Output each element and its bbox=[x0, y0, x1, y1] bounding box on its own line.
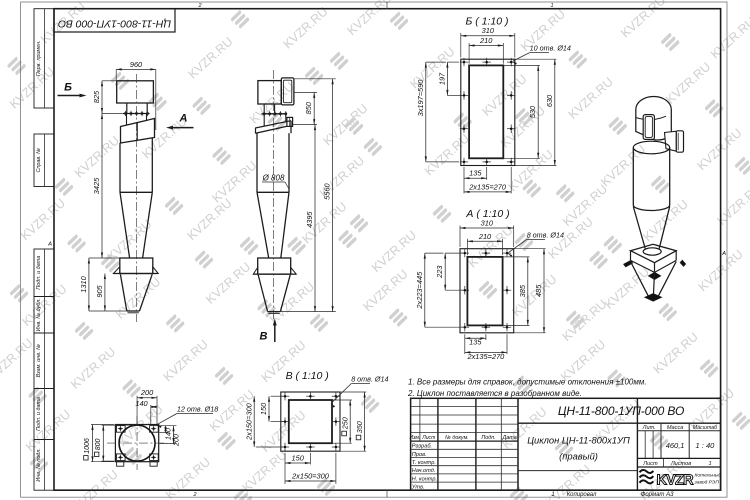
svg-text:Котельный: Котельный bbox=[695, 472, 722, 479]
svg-text:850: 850 bbox=[304, 101, 313, 114]
svg-text:1: 1 bbox=[551, 492, 554, 498]
svg-text:Справ. №: Справ. № bbox=[36, 148, 42, 173]
svg-text:135: 135 bbox=[469, 338, 482, 347]
svg-text:Инв. № подл.: Инв. № подл. bbox=[36, 448, 42, 481]
svg-text:А: А bbox=[179, 112, 188, 124]
svg-text:Ø 808: Ø 808 bbox=[262, 174, 285, 183]
svg-text:Лист: Лист bbox=[421, 435, 435, 441]
svg-text:800: 800 bbox=[95, 439, 102, 451]
svg-text:Подп.: Подп. bbox=[481, 435, 495, 441]
svg-text:Дата: Дата bbox=[501, 435, 516, 441]
svg-text:Масштаб: Масштаб bbox=[693, 425, 718, 431]
svg-text:2х150=300: 2х150=300 bbox=[291, 471, 330, 480]
svg-text:Листов: Листов bbox=[670, 461, 691, 467]
svg-text:10 отв. Ø14: 10 отв. Ø14 bbox=[530, 44, 571, 53]
svg-text:2х223=445: 2х223=445 bbox=[415, 271, 424, 310]
svg-text:Лит.: Лит. bbox=[642, 425, 656, 431]
svg-text:Изм.: Изм. bbox=[409, 435, 420, 441]
svg-text:2х150=300: 2х150=300 bbox=[244, 402, 253, 441]
svg-text:KVZR: KVZR bbox=[657, 473, 695, 489]
svg-text:Т. контр.: Т. контр. bbox=[412, 460, 436, 466]
svg-text:2х135=270: 2х135=270 bbox=[468, 182, 507, 191]
svg-text:200: 200 bbox=[171, 434, 180, 447]
svg-text:В: В bbox=[260, 331, 268, 343]
svg-text:485: 485 bbox=[534, 284, 543, 297]
svg-text:1310: 1310 bbox=[79, 275, 88, 292]
svg-text:8 отв. Ø14: 8 отв. Ø14 bbox=[351, 375, 388, 384]
svg-text:ЦН-11-800-1УП-000 ВО: ЦН-11-800-1УП-000 ВО bbox=[58, 17, 171, 29]
svg-text:1: 1 bbox=[550, 3, 553, 9]
svg-text:150: 150 bbox=[292, 453, 305, 462]
svg-text:2: 2 bbox=[197, 3, 201, 9]
svg-text:2. Циклон поставляется в разоб: 2. Циклон поставляется в разобранном вид… bbox=[407, 389, 582, 398]
svg-text:Нач.отд.: Нач.отд. bbox=[412, 468, 436, 474]
svg-text:210: 210 bbox=[479, 36, 493, 45]
svg-text:Подп. и дата: Подп. и дата bbox=[36, 256, 42, 290]
svg-text:Масса: Масса bbox=[667, 425, 684, 431]
svg-text:223: 223 bbox=[435, 265, 444, 279]
svg-text:Разраб.: Разраб. bbox=[412, 444, 432, 450]
svg-text:Подп. и дата: Подп. и дата bbox=[36, 397, 42, 431]
svg-text:ЦН-11-800-1УП-000 ВО: ЦН-11-800-1УП-000 ВО bbox=[558, 404, 684, 418]
svg-text:630: 630 bbox=[545, 94, 554, 107]
svg-text:2х135=270: 2х135=270 bbox=[467, 352, 506, 361]
svg-text:530: 530 bbox=[528, 105, 537, 118]
svg-text:140: 140 bbox=[135, 399, 148, 408]
svg-text:А: А bbox=[721, 251, 726, 257]
svg-text:310: 310 bbox=[482, 26, 495, 35]
svg-text:825: 825 bbox=[92, 90, 101, 103]
svg-text:460,1: 460,1 bbox=[666, 441, 685, 450]
svg-text:1 : 40: 1 : 40 bbox=[696, 441, 716, 450]
svg-text:Копировал: Копировал bbox=[567, 492, 597, 498]
svg-text:385: 385 bbox=[518, 284, 527, 297]
svg-text:В ( 1:10 ): В ( 1:10 ) bbox=[286, 370, 329, 382]
svg-text:135: 135 bbox=[469, 169, 482, 178]
svg-text:Циклон ЦН-11-800х1УП: Циклон ЦН-11-800х1УП bbox=[527, 435, 630, 446]
svg-text:Утв.: Утв. bbox=[411, 485, 425, 491]
svg-text:200: 200 bbox=[140, 388, 154, 397]
svg-text:4395: 4395 bbox=[305, 211, 314, 228]
svg-text:2: 2 bbox=[192, 492, 196, 498]
svg-text:3425: 3425 bbox=[92, 177, 101, 194]
svg-text:250: 250 bbox=[340, 417, 349, 430]
svg-text:завод РЭП: завод РЭП bbox=[694, 480, 720, 486]
svg-text:(правый): (правый) bbox=[559, 451, 598, 462]
svg-text:Б: Б bbox=[64, 82, 72, 94]
svg-text:150: 150 bbox=[259, 402, 268, 415]
svg-text:1: 1 bbox=[708, 461, 711, 467]
svg-text:Взам. инв. №: Взам. инв. № bbox=[36, 344, 42, 378]
svg-text:310: 310 bbox=[481, 218, 494, 227]
svg-text:210: 210 bbox=[478, 232, 492, 241]
svg-text:350: 350 bbox=[355, 421, 364, 433]
svg-text:905: 905 bbox=[95, 284, 104, 297]
svg-text:№ докум.: № докум. bbox=[445, 435, 469, 441]
svg-text:Перв. примен.: Перв. примен. bbox=[36, 40, 42, 76]
svg-text:960: 960 bbox=[130, 60, 143, 69]
svg-text:1. Все размеры для справок, до: 1. Все размеры для справок, допустимые о… bbox=[408, 378, 647, 387]
svg-text:Формат А3: Формат А3 bbox=[641, 492, 674, 498]
svg-text:Инв. № дубл.: Инв. № дубл. bbox=[36, 298, 42, 331]
svg-text:5560: 5560 bbox=[323, 182, 332, 199]
svg-text:Пров.: Пров. bbox=[412, 452, 427, 458]
svg-text:12 отв. Ø18: 12 отв. Ø18 bbox=[177, 405, 218, 414]
svg-text:Лист: Лист bbox=[642, 461, 658, 467]
svg-text:А: А bbox=[47, 242, 52, 248]
svg-text:3х197=590: 3х197=590 bbox=[416, 79, 425, 117]
svg-text:1006: 1006 bbox=[84, 438, 91, 454]
svg-text:197: 197 bbox=[437, 72, 446, 85]
svg-text:Н. контр.: Н. контр. bbox=[412, 476, 437, 482]
svg-text:8 отв. Ø14: 8 отв. Ø14 bbox=[527, 230, 564, 239]
